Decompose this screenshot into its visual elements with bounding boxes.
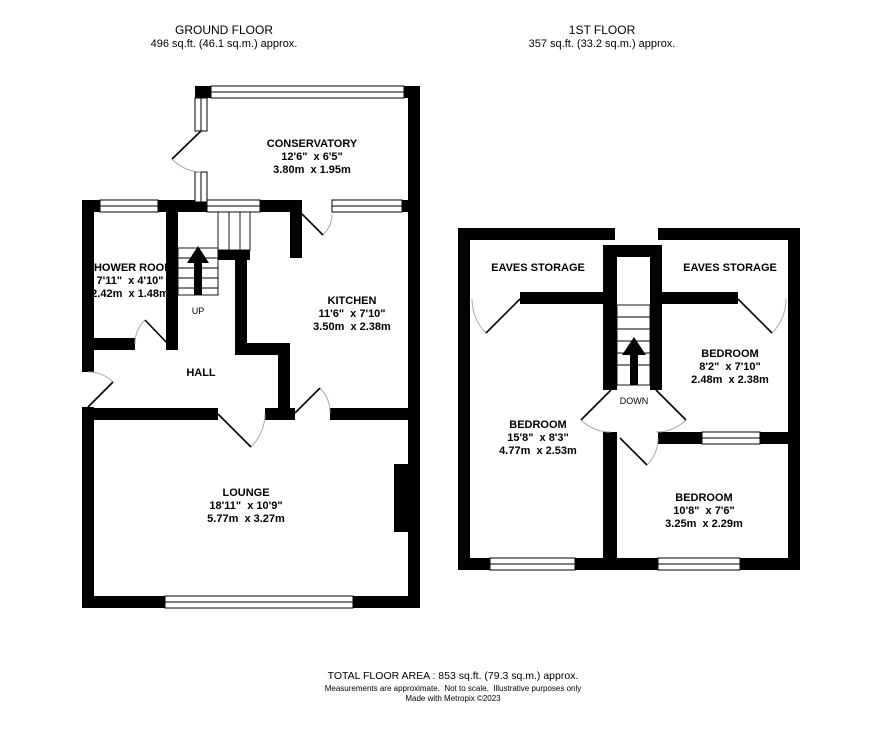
room-imperial: 7'11" x 4'10" — [96, 275, 163, 287]
room-label-eaves-storage-right: EAVES STORAGE — [683, 262, 777, 274]
window — [195, 98, 207, 131]
window — [332, 200, 402, 212]
room-name: HALL — [186, 367, 216, 379]
window — [658, 558, 740, 570]
room-imperial: 8'2" x 7'10" — [699, 361, 761, 373]
window — [207, 200, 260, 212]
room-metric: 2.42m x 1.48m — [91, 288, 169, 300]
door — [472, 299, 520, 333]
door — [135, 320, 168, 344]
first-floor-title: 1ST FLOOR — [569, 23, 636, 37]
room-metric: 3.80m x 1.95m — [273, 164, 351, 176]
ground-floor-header: GROUND FLOOR 496 sq.ft. (46.1 sq.m.) app… — [151, 23, 298, 50]
window — [165, 596, 353, 608]
room-name: BEDROOM — [509, 419, 566, 431]
window — [211, 86, 404, 98]
room-label-hall: HALL — [186, 367, 216, 379]
window — [195, 172, 207, 202]
room-name: CONSERVATORY — [267, 138, 358, 150]
door — [88, 372, 113, 407]
room-name: BEDROOM — [701, 348, 758, 360]
window — [702, 432, 760, 444]
room-name: EAVES STORAGE — [683, 262, 777, 274]
door — [302, 214, 332, 235]
room-imperial: 10'8" x 7'6" — [673, 505, 735, 517]
door — [656, 390, 686, 432]
room-imperial: 12'6" x 6'5" — [281, 151, 343, 163]
room-label-bedroom-right-bottom: BEDROOM 10'8" x 7'6" 3.25m x 2.29m — [665, 492, 743, 530]
door — [620, 438, 658, 465]
floorplan: GROUND FLOOR 496 sq.ft. (46.1 sq.m.) app… — [0, 0, 886, 739]
room-name: LOUNGE — [222, 487, 269, 499]
door — [738, 299, 786, 333]
first-floor-header: 1ST FLOOR 357 sq.ft. (33.2 sq.m.) approx… — [529, 23, 676, 50]
room-label-bedroom-left: BEDROOM 15'8" x 8'3" 4.77m x 2.53m — [499, 419, 577, 457]
footer: TOTAL FLOOR AREA : 853 sq.ft. (79.3 sq.m… — [325, 670, 582, 703]
room-metric: 4.77m x 2.53m — [499, 445, 577, 457]
room-imperial: 11'6" x 7'10" — [318, 308, 385, 320]
disclaimer: Measurements are approximate. Not to sca… — [325, 684, 582, 693]
door — [581, 390, 611, 432]
room-imperial: 18'11" x 10'9" — [209, 500, 282, 512]
door — [295, 388, 330, 413]
stairs-up-label: UP — [192, 306, 205, 316]
room-name: BEDROOM — [675, 492, 732, 504]
door — [218, 414, 265, 447]
room-label-conservatory: CONSERVATORY 12'6" x 6'5" 3.80m x 1.95m — [267, 138, 358, 176]
stairs-down: DOWN — [617, 305, 650, 406]
room-metric: 3.25m x 2.29m — [665, 518, 743, 530]
window — [100, 200, 158, 212]
door — [172, 131, 201, 172]
room-metric: 5.77m x 3.27m — [207, 513, 285, 525]
stairs-down-label: DOWN — [620, 396, 649, 406]
room-label-eaves-storage-left: EAVES STORAGE — [491, 262, 585, 274]
room-imperial: 15'8" x 8'3" — [507, 432, 569, 444]
total-floor-area: TOTAL FLOOR AREA : 853 sq.ft. (79.3 sq.m… — [328, 670, 579, 682]
room-name: EAVES STORAGE — [491, 262, 585, 274]
room-label-kitchen: KITCHEN 11'6" x 7'10" 3.50m x 2.38m — [313, 295, 391, 333]
room-metric: 2.48m x 2.38m — [691, 374, 769, 386]
room-name: KITCHEN — [328, 295, 377, 307]
room-label-lounge: LOUNGE 18'11" x 10'9" 5.77m x 3.27m — [207, 487, 285, 525]
room-label-bedroom-right-middle: BEDROOM 8'2" x 7'10" 2.48m x 2.38m — [691, 348, 769, 386]
room-label-shower-room: SHOWER ROOM 7'11" x 4'10" 2.42m x 1.48m — [87, 262, 174, 300]
first-floor-area: 357 sq.ft. (33.2 sq.m.) approx. — [529, 38, 676, 50]
room-metric: 3.50m x 2.38m — [313, 321, 391, 333]
window — [490, 558, 575, 570]
ground-floor-walls — [82, 86, 420, 608]
ground-floor-title: GROUND FLOOR — [175, 23, 273, 37]
ground-floor-area: 496 sq.ft. (46.1 sq.m.) approx. — [151, 38, 298, 50]
ground-floor-plan: UP CONSERVATORY 12'6" x 6'5" 3.80m x 1.9… — [82, 86, 420, 608]
credit: Made with Metropix ©2023 — [405, 694, 501, 703]
room-name: SHOWER ROOM — [87, 262, 174, 274]
first-floor-plan: DOWN EAVES STORAGE EAVES STORAGE BEDROOM… — [458, 228, 800, 570]
chimney-breast — [394, 464, 408, 532]
